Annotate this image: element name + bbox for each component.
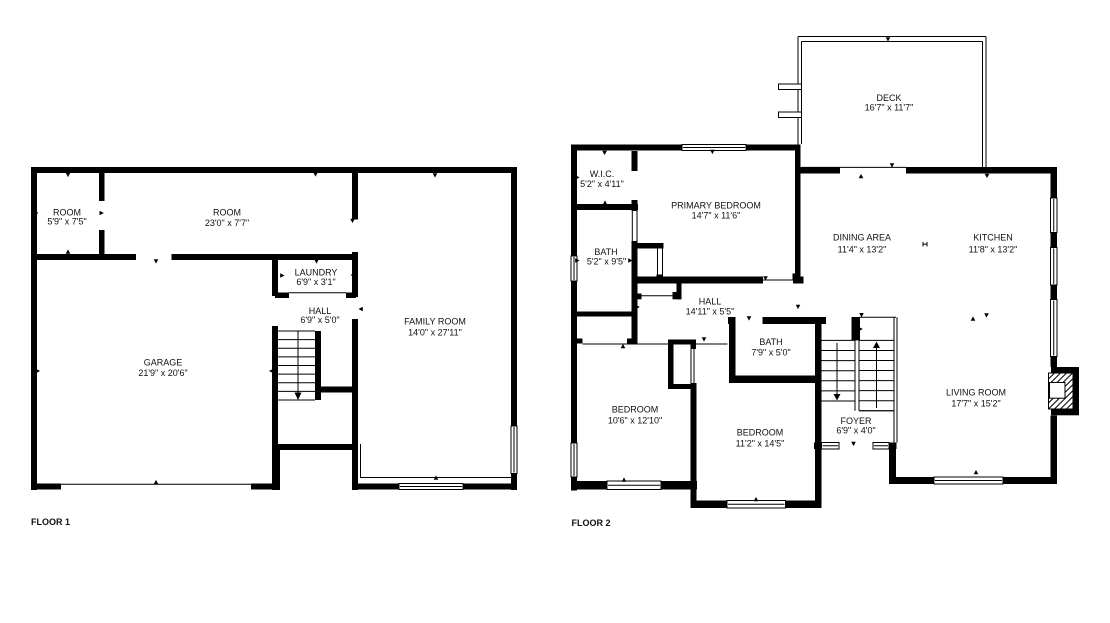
svg-text:ROOM: ROOM (213, 208, 241, 218)
svg-text:5'9" x 7'5": 5'9" x 7'5" (47, 217, 86, 227)
svg-text:21'9" x 20'6": 21'9" x 20'6" (138, 368, 187, 378)
svg-text:11'8" x 13'2": 11'8" x 13'2" (969, 244, 1018, 254)
svg-text:BEDROOM: BEDROOM (737, 427, 784, 437)
svg-text:11'4" x 13'2": 11'4" x 13'2" (838, 244, 887, 254)
svg-text:5'2" x 4'11": 5'2" x 4'11" (580, 179, 624, 189)
svg-text:FLOOR 1: FLOOR 1 (31, 517, 70, 527)
svg-text:DINING AREA: DINING AREA (833, 232, 891, 242)
svg-text:FAMILY ROOM: FAMILY ROOM (404, 317, 466, 327)
svg-text:W.I.C.: W.I.C. (590, 169, 615, 179)
svg-text:17'7" x 15'2": 17'7" x 15'2" (951, 398, 1000, 408)
svg-text:GARAGE: GARAGE (144, 358, 183, 368)
svg-text:FLOOR 2: FLOOR 2 (572, 518, 611, 528)
svg-text:14'0" x 27'11": 14'0" x 27'11" (408, 328, 462, 338)
svg-text:FOYER: FOYER (840, 416, 872, 426)
svg-text:LIVING ROOM: LIVING ROOM (946, 387, 1006, 397)
svg-text:10'6" x 12'10": 10'6" x 12'10" (608, 415, 662, 425)
svg-text:14'7" x 11'6": 14'7" x 11'6" (692, 210, 741, 220)
svg-text:5'2" x 9'5": 5'2" x 9'5" (587, 257, 626, 267)
svg-text:HALL: HALL (699, 297, 722, 307)
svg-text:23'0" x 7'7": 23'0" x 7'7" (205, 218, 249, 228)
svg-text:BATH: BATH (594, 247, 617, 257)
svg-text:16'7" x 11'7": 16'7" x 11'7" (865, 103, 914, 113)
svg-text:11'2" x 14'5": 11'2" x 14'5" (736, 438, 785, 448)
svg-text:14'11" x 5'5": 14'11" x 5'5" (686, 307, 735, 317)
svg-text:DECK: DECK (876, 93, 901, 103)
svg-text:LAUNDRY: LAUNDRY (295, 267, 338, 277)
svg-text:7'9" x 5'0": 7'9" x 5'0" (751, 348, 790, 358)
svg-text:6'9" x 5'0": 6'9" x 5'0" (300, 315, 339, 325)
svg-text:PRIMARY BEDROOM: PRIMARY BEDROOM (671, 200, 761, 210)
svg-text:6'9" x 3'1": 6'9" x 3'1" (296, 277, 335, 287)
svg-text:6'9" x 4'0": 6'9" x 4'0" (836, 426, 875, 436)
svg-text:BEDROOM: BEDROOM (612, 404, 659, 414)
svg-text:BATH: BATH (759, 337, 782, 347)
svg-text:KITCHEN: KITCHEN (973, 232, 1013, 242)
